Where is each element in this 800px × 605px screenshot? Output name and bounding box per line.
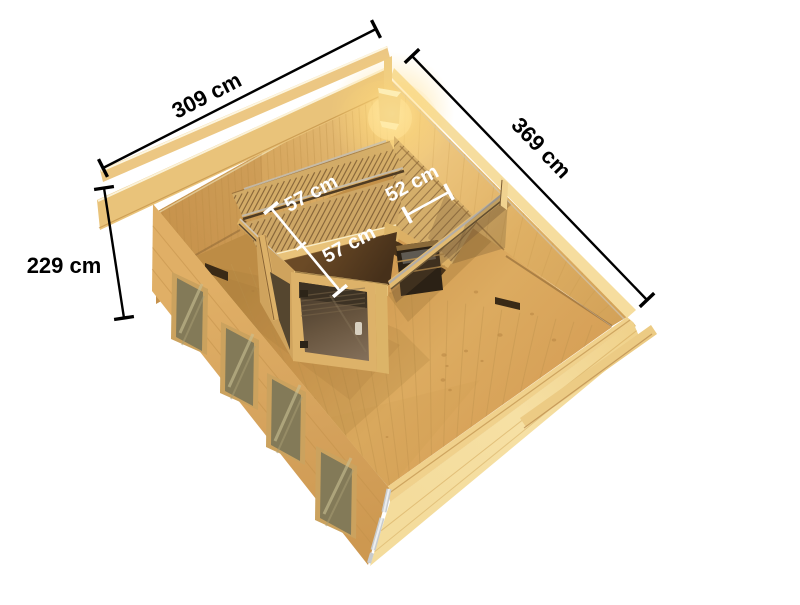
- svg-text:229 cm: 229 cm: [27, 253, 102, 278]
